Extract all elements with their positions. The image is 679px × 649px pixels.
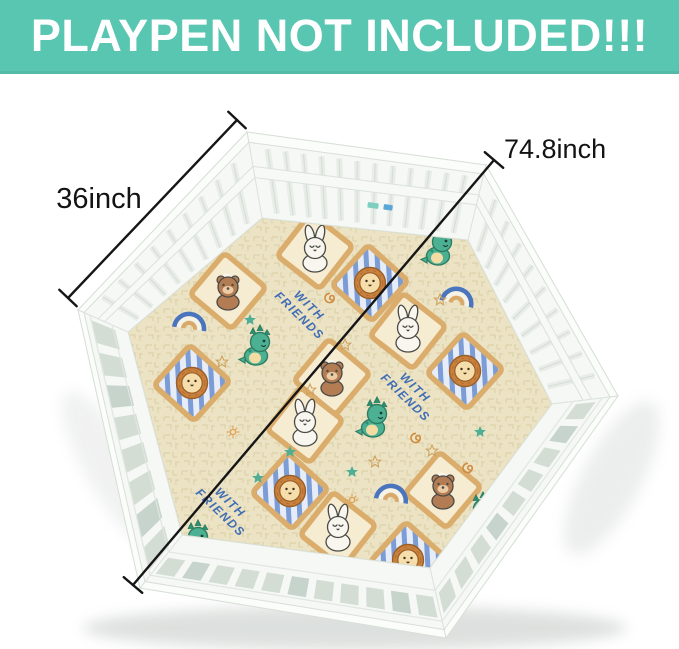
warning-banner: PLAYPEN NOT INCLUDED!!! — [0, 0, 679, 74]
diagonal-length-label: 74.8inch — [504, 134, 606, 164]
side-length-label: 36inch — [56, 183, 141, 215]
bear-icon — [432, 475, 454, 509]
product-figure: WITHFRIENDSWITHFRIENDSWITHFRIENDS 36inch… — [0, 0, 679, 649]
bear-icon — [217, 276, 239, 310]
lion-icon — [275, 476, 306, 507]
warning-banner-text: PLAYPEN NOT INCLUDED!!! — [31, 10, 648, 62]
product-screenshot: WITHFRIENDSWITHFRIENDSWITHFRIENDS 36inch… — [0, 0, 679, 649]
lion-icon — [177, 368, 208, 399]
lion-icon — [450, 356, 481, 387]
bear-icon — [321, 362, 343, 396]
